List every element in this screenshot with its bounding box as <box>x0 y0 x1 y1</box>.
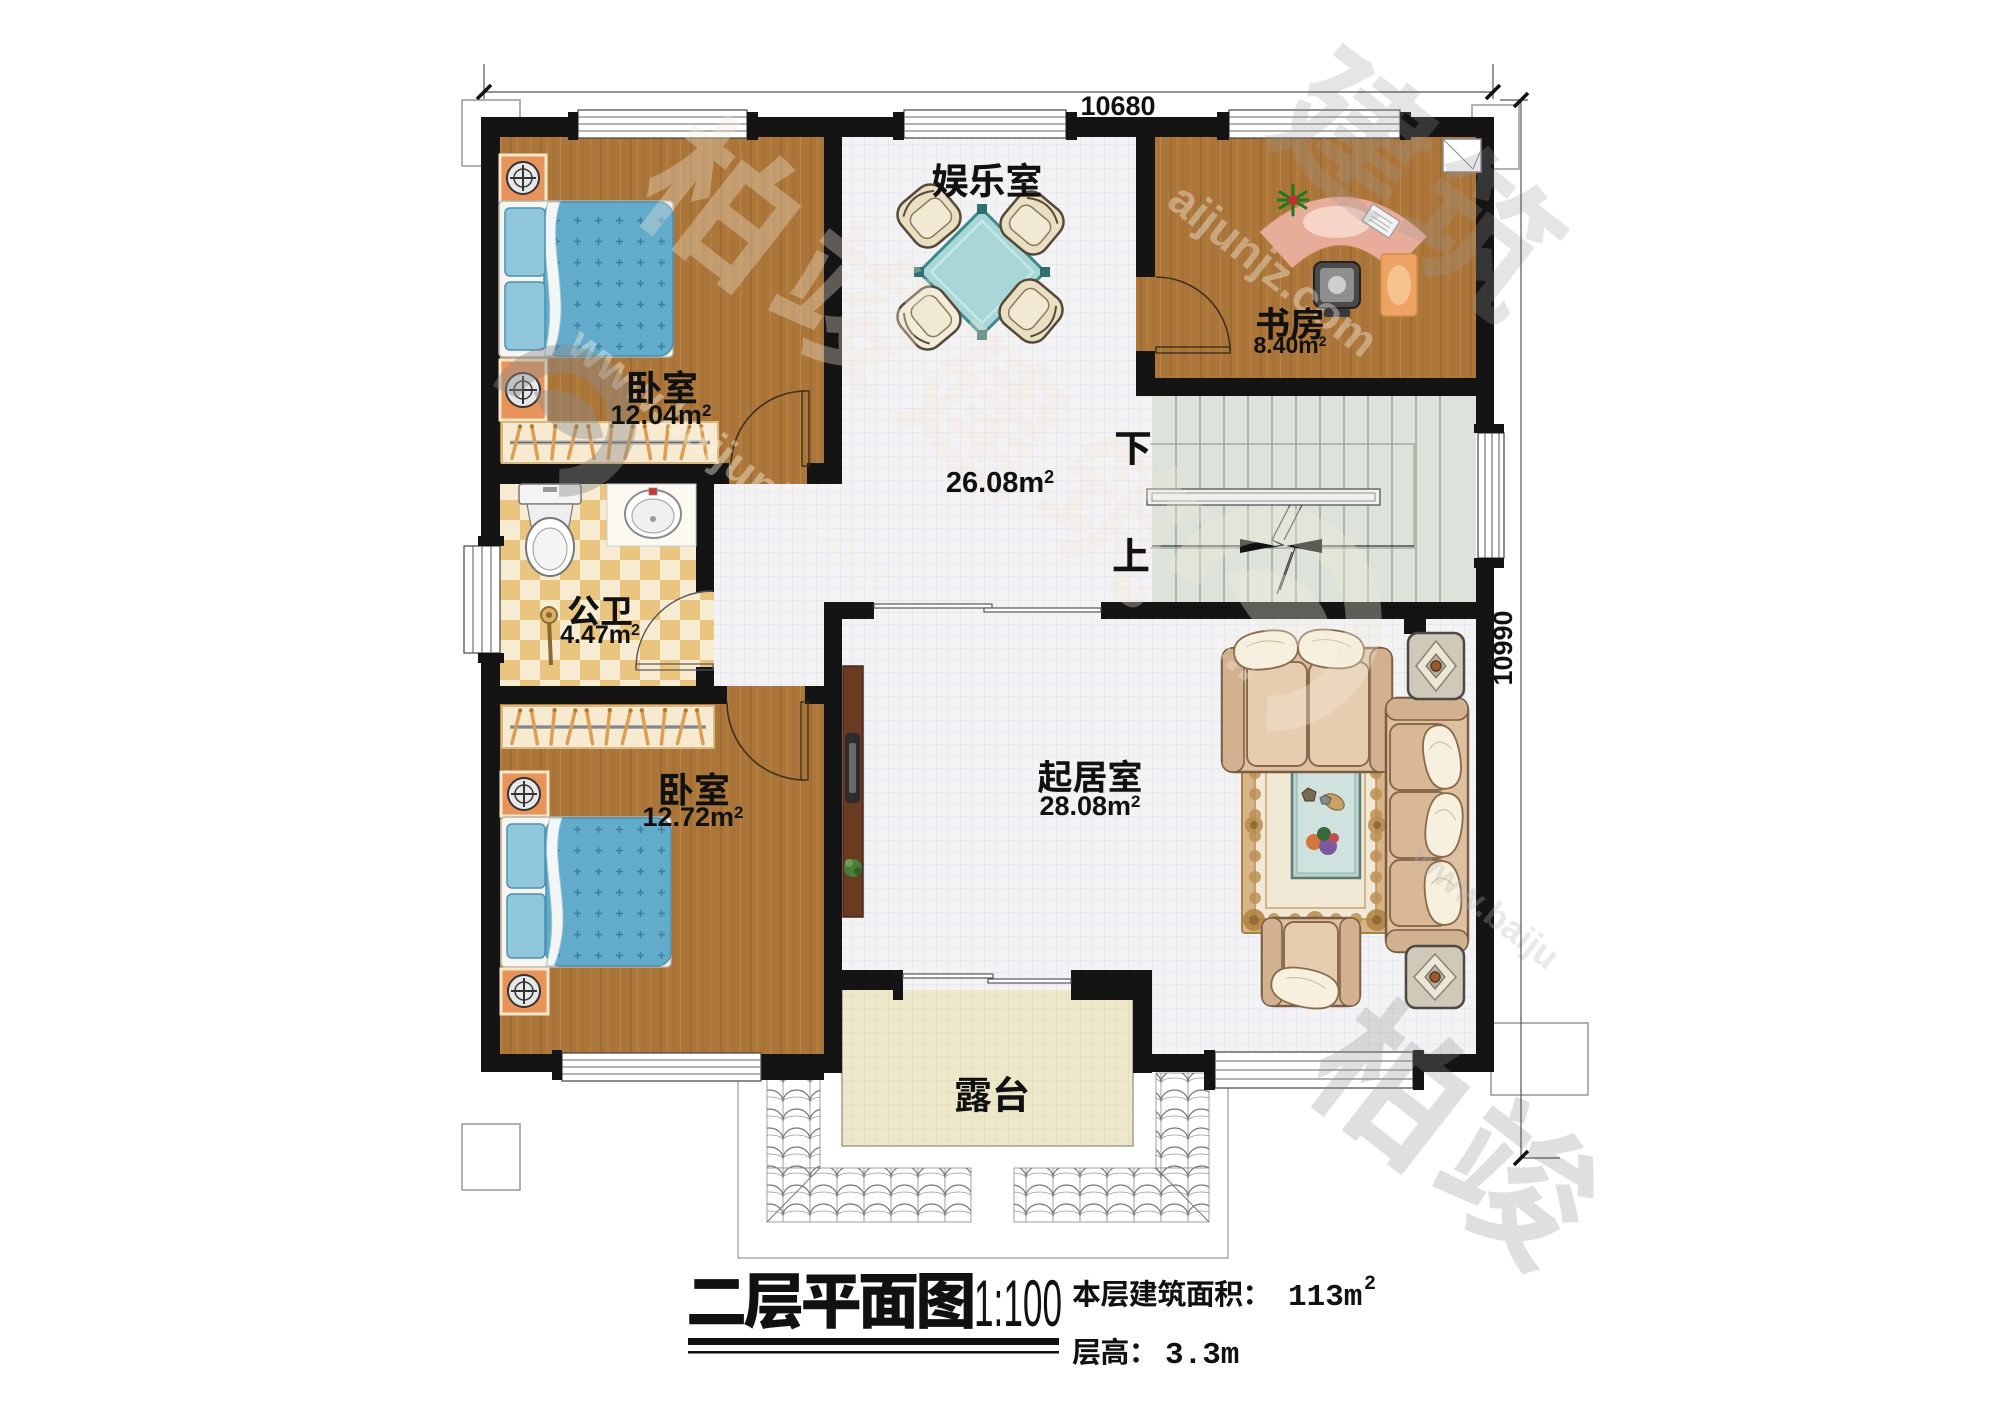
svg-text:8.40m2: 8.40m2 <box>1253 332 1326 358</box>
svg-text:1:100: 1:100 <box>974 1266 1062 1340</box>
svg-text:113m: 113m <box>1288 1280 1362 1315</box>
svg-text:12.04m2: 12.04m2 <box>610 400 711 430</box>
svg-text:2: 2 <box>1364 1273 1376 1296</box>
svg-text:4.47m2: 4.47m2 <box>560 621 640 649</box>
svg-text:26.08m2: 26.08m2 <box>946 467 1054 499</box>
svg-text:28.08m2: 28.08m2 <box>1039 791 1140 821</box>
svg-text:10680: 10680 <box>1080 91 1155 121</box>
svg-text:3.3m: 3.3m <box>1165 1338 1239 1373</box>
svg-text:10990: 10990 <box>1488 610 1518 685</box>
svg-text:12.72m2: 12.72m2 <box>642 802 743 832</box>
